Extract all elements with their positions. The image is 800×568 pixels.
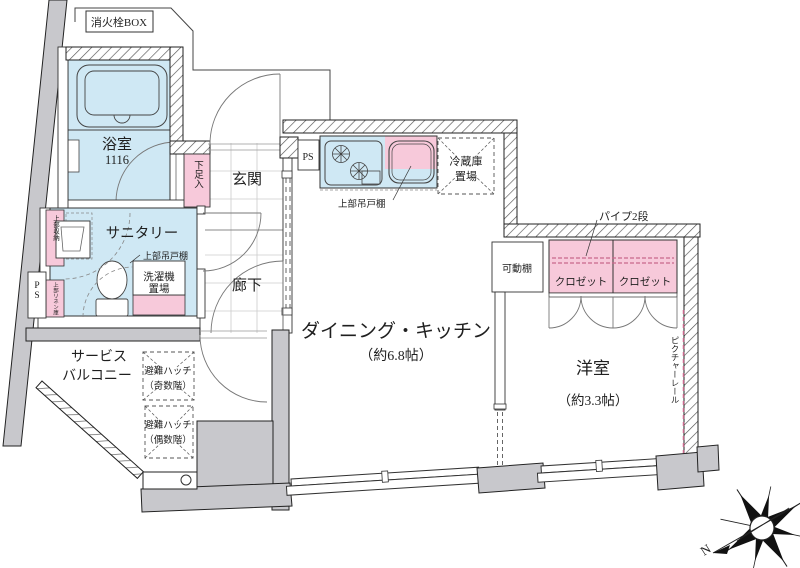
shoe-box: 下足入 [184, 154, 210, 207]
entrance-label: 玄関 [232, 171, 262, 188]
corridor-label: 廊下 [232, 277, 262, 294]
fridge-label-2: 置場 [455, 170, 477, 183]
western-room-label: 洋室 [576, 359, 610, 378]
sanitary-room: サニタリー 上部収納 上部リネン庫 上部吊戸棚 洗濯機 置場 [46, 208, 197, 317]
washer-label-2: 置場 [149, 282, 170, 295]
bathroom-label: 浴室 [102, 136, 132, 153]
hatch-even-label-1: 避難ハッチ [144, 419, 192, 431]
wall-east-outer [684, 237, 698, 455]
closet-right-label: クロゼット [619, 276, 672, 288]
corridor-dk-partition [282, 158, 292, 333]
wall-closet-north [504, 224, 700, 237]
ps-west-label: PS [32, 281, 42, 301]
wall-kitchen-north [283, 120, 517, 133]
drain [181, 475, 191, 485]
picture-rail-label: ピクチャーレール [670, 336, 680, 404]
bathroom: 浴室 1116 [68, 59, 176, 202]
wall-bath-north [66, 47, 182, 60]
slab-between-windows [477, 463, 545, 493]
bath-counter [68, 140, 79, 172]
wall-entrance-west [170, 141, 210, 154]
balcony-slab-step [197, 421, 273, 490]
pipe-space-west: PS [28, 272, 46, 318]
dk-label: ダイニング・キッチン [301, 320, 491, 342]
fire-hydrant-box: 消火栓BOX [86, 11, 153, 32]
sanitary-upper-cabinet-label: 上部吊戸棚 [143, 250, 188, 261]
movable-shelf-label: 可動棚 [502, 262, 532, 275]
pipe-label: パイプ2段 [599, 209, 649, 223]
closet-left-label: クロゼット [555, 276, 608, 288]
washer-cabinet [133, 295, 185, 315]
wall-bath-sanitary [62, 200, 197, 208]
wall-kitchen-pillar [280, 137, 298, 158]
fire-hydrant-box-label: 消火栓BOX [91, 15, 147, 29]
washbasin [56, 221, 90, 258]
western-room-size-label: （約3.3帖） [558, 393, 629, 408]
washer-label-1: 洗濯機 [143, 270, 175, 283]
wall-balcony-north [26, 328, 200, 341]
hatch-odd-label-1: 避難ハッチ [144, 365, 192, 377]
balcony-label-2: バルコニー [62, 369, 132, 384]
slab-east-step [697, 445, 719, 472]
pipe-space-kitchen: PS [298, 140, 319, 170]
floor-plan-drawing: 消火栓BOX 浴室 1116 サニタリー 上部 [0, 0, 800, 568]
wall-sanitary-south [38, 316, 200, 328]
wall-bath-east [170, 47, 183, 143]
wall-bath-west [58, 47, 68, 208]
shoe-box-label: 下足入 [192, 160, 204, 189]
wall-kitchen-east [504, 133, 517, 237]
hatch-even-label-2: （偶数階） [144, 434, 192, 446]
slab-east [656, 452, 704, 490]
toilet [97, 261, 127, 299]
balcony-label-1: サービス [71, 349, 127, 365]
hatch-odd-label-2: （奇数階） [144, 380, 192, 392]
floor-plan-page: 消火栓BOX 浴室 1116 サニタリー 上部 [0, 0, 800, 568]
kitchen-upper-cabinet-label: 上部吊戸棚 [338, 198, 386, 210]
dk-size-label: （約6.8帖） [359, 348, 433, 364]
movable-shelf: 可動棚 [492, 242, 543, 292]
upper-linen-label: 上部リネン庫 [52, 281, 59, 317]
sanitary-label: サニタリー [106, 225, 179, 242]
ps-kitchen-label: PS [302, 152, 313, 163]
fridge-label-1: 冷蔵庫 [450, 154, 483, 168]
bathroom-size-label: 1116 [105, 153, 129, 167]
